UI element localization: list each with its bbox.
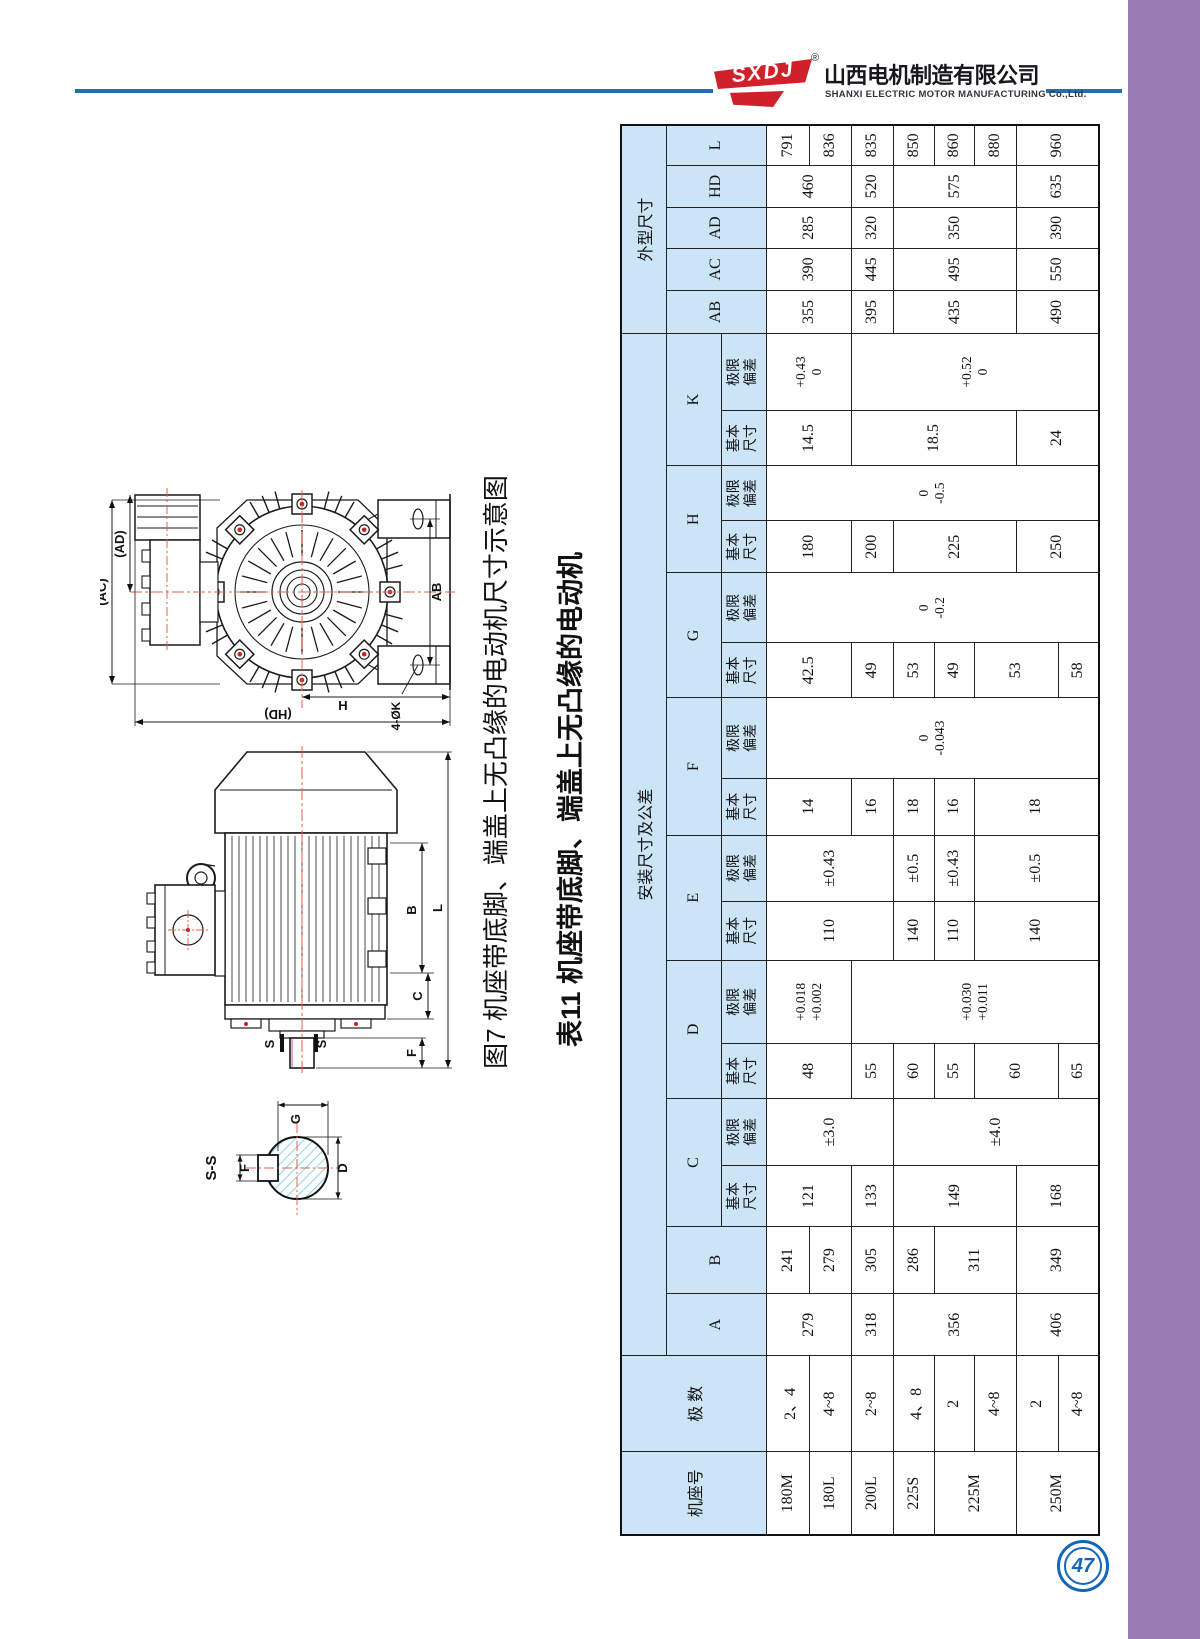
table-cell: +0.018+0.002 <box>766 960 851 1043</box>
table-header-cell: G <box>666 573 721 698</box>
table-header-cell: B <box>666 1227 766 1294</box>
table-cell: 390 <box>1016 207 1099 248</box>
table-cell: 2 <box>1016 1356 1058 1452</box>
table-cell: 835 <box>851 125 893 165</box>
company-name-cn: 山西电机制造有限公司 <box>824 58 1039 90</box>
table-cell: 24 <box>1016 411 1099 466</box>
section-label-s1: S <box>262 1039 277 1048</box>
table-cell: 225M <box>934 1452 1016 1535</box>
table-header-cell: 极限偏差 <box>721 466 766 521</box>
table-cell: 250 <box>1016 521 1099 573</box>
table-cell: 960 <box>1016 125 1099 165</box>
dimension-table-rotated-wrapper: 机座号极 数安装尺寸及公差外型尺寸ABCDEFGHKABACADHDL基本尺寸极… <box>620 124 1098 1536</box>
table-cell: 140 <box>893 901 934 960</box>
table-cell: 42.5 <box>766 643 851 698</box>
table-cell: 279 <box>766 1294 851 1356</box>
table-cell: ±3.0 <box>766 1098 893 1165</box>
table-cell: 58 <box>1058 643 1099 698</box>
table-cell: 575 <box>893 165 1016 207</box>
table-cell: 49 <box>934 643 974 698</box>
side-purple-band <box>1128 0 1200 1639</box>
dim-label-d: D <box>335 1163 350 1172</box>
dim-label-hd: (HD) <box>264 707 291 722</box>
table-cell: 14.5 <box>766 411 851 466</box>
table-cell: 0-0.5 <box>766 466 1099 521</box>
table-cell: 318 <box>851 1294 893 1356</box>
table-cell: 350 <box>893 207 1016 248</box>
table-cell: 395 <box>851 290 893 333</box>
table-header-cell: 机座号 <box>621 1452 766 1535</box>
table-header-cell: 基本尺寸 <box>721 778 766 835</box>
table-cell: +0.520 <box>851 333 1099 410</box>
table-cell: 60 <box>974 1043 1058 1098</box>
table-cell: 180 <box>766 521 851 573</box>
table-header-cell: 极限偏差 <box>721 835 766 901</box>
table-cell: 18.5 <box>851 411 1016 466</box>
table-cell: 635 <box>1016 165 1099 207</box>
section-label-s2: S <box>314 1039 329 1048</box>
base-and-shaft <box>225 1005 385 1068</box>
table-cell: 53 <box>893 643 934 698</box>
table-cell: 445 <box>851 248 893 290</box>
dimension-table: 机座号极 数安装尺寸及公差外型尺寸ABCDEFGHKABACADHDL基本尺寸极… <box>620 124 1100 1536</box>
table-cell: 311 <box>934 1227 1016 1294</box>
dim-label-4-ok: 4-ØK <box>389 701 403 730</box>
table-caption: 表11 机座带底脚、端盖上无凸缘的电动机 <box>551 587 591 1047</box>
dim-label-f: F <box>237 1164 252 1172</box>
table-cell: 65 <box>1058 1043 1099 1098</box>
table-header-cell: HD <box>666 165 766 207</box>
fan-cowl <box>215 752 397 833</box>
table-cell: 490 <box>1016 290 1099 333</box>
table-cell: 4~8 <box>1058 1356 1099 1452</box>
table-cell: 48 <box>766 1043 851 1098</box>
table-cell: 320 <box>851 207 893 248</box>
table-header-cell: 极限偏差 <box>721 698 766 778</box>
table-cell: +0.030+0.011 <box>851 960 1099 1043</box>
table-cell: 286 <box>893 1227 934 1294</box>
table-cell: 14 <box>766 778 851 835</box>
dim-label-ad: (AD) <box>112 530 127 557</box>
table-cell: 241 <box>766 1227 809 1294</box>
table-cell: 460 <box>766 165 851 207</box>
table-cell: 791 <box>766 125 809 165</box>
table-header-cell: F <box>666 698 721 835</box>
table-cell: ±0.43 <box>934 835 974 901</box>
dim-label-ac: (AC) <box>100 578 109 605</box>
table-cell: 200 <box>851 521 893 573</box>
table-cell: 225S <box>893 1452 934 1535</box>
figure-end-view: (AC) (AD) AB H (HD) 4-ØK <box>100 450 460 750</box>
company-name-en: SHANXI ELECTRIC MOTOR MANUFACTURING Co.,… <box>825 89 1087 100</box>
table-cell: 285 <box>766 207 851 248</box>
table-cell: 305 <box>851 1227 893 1294</box>
logo-text: SXDJ <box>715 56 811 90</box>
table-header-cell: AC <box>666 248 766 290</box>
table-header-cell: D <box>666 960 721 1098</box>
dim-label-f: F <box>404 1049 419 1057</box>
table-cell: 133 <box>851 1166 893 1227</box>
dim-label-ab: AB <box>429 583 444 602</box>
table-header-cell: 极 数 <box>621 1356 766 1452</box>
table-header-cell: 极限偏差 <box>721 960 766 1043</box>
table-cell: 55 <box>934 1043 974 1098</box>
motor-body <box>225 833 387 1005</box>
figure-shaft-section: S-S G D F <box>190 1085 350 1245</box>
table-cell: 168 <box>1016 1166 1099 1227</box>
table-cell: 836 <box>809 125 851 165</box>
table-cell: 0-0.2 <box>766 573 1099 643</box>
table-cell: 140 <box>974 901 1099 960</box>
figure-side-view: S S B L C F <box>128 746 460 1076</box>
table-cell: 110 <box>766 901 893 960</box>
table-header-cell: A <box>666 1294 766 1356</box>
table-cell: 279 <box>809 1227 851 1294</box>
table-cell: ±0.5 <box>893 835 934 901</box>
dim-label-l: L <box>430 904 445 912</box>
dim-label-h: H <box>338 698 347 713</box>
table-header-cell: 安装尺寸及公差 <box>621 333 666 1355</box>
dim-label-b: B <box>404 905 419 914</box>
table-cell: 18 <box>893 778 934 835</box>
sxdj-logo: SXDJ ® <box>714 52 818 114</box>
table-cell: 49 <box>851 643 893 698</box>
table-cell: 4、8 <box>893 1356 934 1452</box>
registered-mark-icon: ® <box>811 52 819 64</box>
catalog-page: SXDJ ® 山西电机制造有限公司 SHANXI ELECTRIC MOTOR … <box>0 0 1200 1639</box>
table-cell: 18 <box>974 778 1099 835</box>
table-cell: 850 <box>893 125 934 165</box>
table-header-cell: 极限偏差 <box>721 333 766 410</box>
table-cell: 110 <box>934 901 974 960</box>
header-rule-left <box>75 89 713 93</box>
table-header-cell: 基本尺寸 <box>721 1166 766 1227</box>
table-cell: 2~8 <box>851 1356 893 1452</box>
table-cell: +0.430 <box>766 333 851 410</box>
terminal-box-end-view <box>135 488 218 650</box>
table-header-cell: 基本尺寸 <box>721 643 766 698</box>
table-cell: 495 <box>893 248 1016 290</box>
table-cell: 16 <box>851 778 893 835</box>
table-cell: 60 <box>893 1043 934 1098</box>
table-cell: 4~8 <box>809 1356 851 1452</box>
table-cell: 406 <box>1016 1294 1099 1356</box>
table-header-cell: K <box>666 333 721 465</box>
table-header-cell: 外型尺寸 <box>621 125 666 333</box>
table-header-cell: 基本尺寸 <box>721 1043 766 1098</box>
page-number-badge: 47 <box>1057 1540 1109 1592</box>
table-cell: 180M <box>766 1452 809 1535</box>
table-cell: 225 <box>893 521 1016 573</box>
table-header-cell: AB <box>666 290 766 333</box>
page-number: 47 <box>1064 1547 1102 1585</box>
table-cell: 520 <box>851 165 893 207</box>
table-header-cell: AD <box>666 207 766 248</box>
table-header-cell: 基本尺寸 <box>721 521 766 573</box>
table-header-cell: 基本尺寸 <box>721 411 766 466</box>
table-cell: 2 <box>934 1356 974 1452</box>
terminal-box-side-view <box>147 885 225 976</box>
table-cell: 16 <box>934 778 974 835</box>
table-header-cell: L <box>666 125 766 165</box>
table-header-cell: C <box>666 1098 721 1226</box>
table-cell: 200L <box>851 1452 893 1535</box>
table-cell: 250M <box>1016 1452 1099 1535</box>
table-cell: 355 <box>766 290 851 333</box>
table-cell: 4~8 <box>974 1356 1016 1452</box>
table-cell: 550 <box>1016 248 1099 290</box>
table-header-cell: 基本尺寸 <box>721 901 766 960</box>
table-cell: 121 <box>766 1166 851 1227</box>
table-cell: 180L <box>809 1452 851 1535</box>
dim-label-c: C <box>410 991 425 1001</box>
table-header-cell: 极限偏差 <box>721 1098 766 1165</box>
logo-red-flag <box>730 91 784 107</box>
table-header-cell: 极限偏差 <box>721 573 766 643</box>
table-cell: 880 <box>974 125 1016 165</box>
figure-caption: 图7 机座带底脚、端盖上无凸缘的电动机尺寸示意图 <box>478 457 514 1087</box>
table-cell: 55 <box>851 1043 893 1098</box>
table-cell: 356 <box>893 1294 1016 1356</box>
table-cell: 149 <box>893 1166 1016 1227</box>
table-cell: ±0.43 <box>766 835 893 901</box>
table-cell: 390 <box>766 248 851 290</box>
table-header-cell: E <box>666 835 721 960</box>
table-cell: ±4.0 <box>893 1098 1099 1165</box>
table-cell: 53 <box>974 643 1058 698</box>
table-cell: 2、4 <box>766 1356 809 1452</box>
table-cell: 435 <box>893 290 1016 333</box>
table-cell: 349 <box>1016 1227 1099 1294</box>
section-title: S-S <box>203 1155 220 1180</box>
table-cell: 860 <box>934 125 974 165</box>
table-cell: 0-0.043 <box>766 698 1099 778</box>
table-header-cell: H <box>666 466 721 573</box>
dim-label-g: G <box>288 1114 303 1124</box>
table-cell: ±0.5 <box>974 835 1099 901</box>
